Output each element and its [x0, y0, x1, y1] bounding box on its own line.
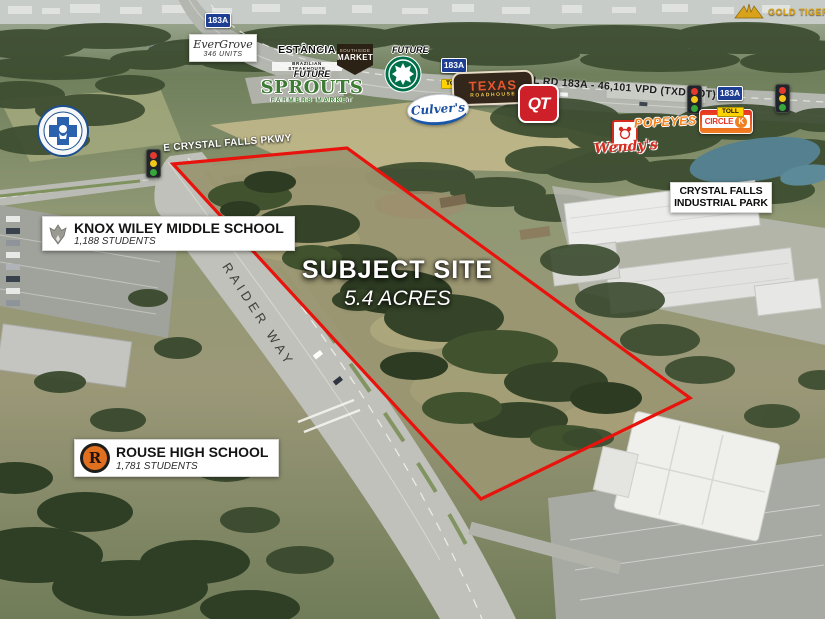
watermark-text: GOLD TIGER — [768, 7, 825, 17]
circle-k-k: K — [735, 116, 747, 128]
rouse-badge-icon: R — [80, 443, 110, 473]
subject-site-acres: 5.4 ACRES — [285, 287, 510, 311]
animal-hospital-logo — [37, 105, 89, 157]
starbucks-future-label: FUTURE — [392, 45, 429, 55]
wolf-icon — [48, 223, 68, 245]
rouse-students: 1,781 STUDENTS — [116, 461, 268, 472]
gold-tiger-watermark: GOLD TIGER — [733, 3, 825, 21]
subject-site-label: SUBJECT SITE 5.4 ACRES — [285, 256, 510, 311]
rouse-name: ROUSE HIGH SCHOOL — [116, 444, 268, 460]
gold-tiger-wings-icon — [733, 3, 765, 21]
toll-shield-183a: 183A TOLL — [717, 86, 743, 117]
knox-wiley-label: KNOX WILEY MIDDLE SCHOOL 1,188 STUDENTS — [42, 216, 295, 251]
knox-wiley-students: 1,188 STUDENTS — [74, 236, 284, 247]
subject-site-title: SUBJECT SITE — [285, 256, 510, 285]
traffic-light-icon — [775, 84, 790, 113]
culvers-name: Culver's — [410, 100, 465, 118]
popeyes-logo: POPEYES — [634, 111, 697, 132]
sprouts-tagline: FARMERS MARKET — [250, 98, 374, 105]
evergrove-sign: EverGrove 346 UNITS — [189, 34, 257, 62]
industrial-park-sign: CRYSTAL FALLS INDUSTRIAL PARK — [670, 182, 772, 213]
shield-route-number: 183A — [441, 58, 467, 73]
sprouts-name: SPROUTS — [250, 79, 374, 98]
sprouts-logo: FUTURE SPROUTS FARMERS MARKET — [250, 70, 374, 105]
shield-route-number: 183A — [205, 13, 231, 28]
estancia-name: ESTÂNCIA — [272, 45, 342, 57]
evergrove-name: EverGrove — [192, 38, 254, 51]
industrial-park-line2: INDUSTRIAL PARK — [673, 198, 769, 210]
qt-logo: QT — [518, 84, 559, 123]
texas-roadhouse-line2: ROADHOUSE — [470, 92, 516, 99]
traffic-light-icon — [146, 149, 161, 178]
shield-toll-tag: TOLL — [717, 107, 744, 118]
southside-line2: MARKET — [337, 53, 373, 62]
texas-roadhouse-line1: TEXAS — [469, 78, 518, 93]
industrial-park-line1: CRYSTAL FALLS — [673, 186, 769, 198]
qt-name: QT — [528, 94, 550, 114]
starbucks-siren-icon — [384, 55, 422, 93]
evergrove-units: 346 UNITS — [192, 51, 254, 58]
shield-route-number: 183A — [717, 86, 743, 101]
rouse-label: R ROUSE HIGH SCHOOL 1,781 STUDENTS — [74, 439, 279, 477]
rouse-monogram: R — [83, 446, 107, 470]
circle-k-word: CIRCLE — [705, 117, 734, 126]
knox-wiley-name: KNOX WILEY MIDDLE SCHOOL — [74, 220, 284, 236]
aerial-site-map: GOLD TIGER 183A TOLL EverGrove 346 UNITS… — [0, 0, 825, 619]
